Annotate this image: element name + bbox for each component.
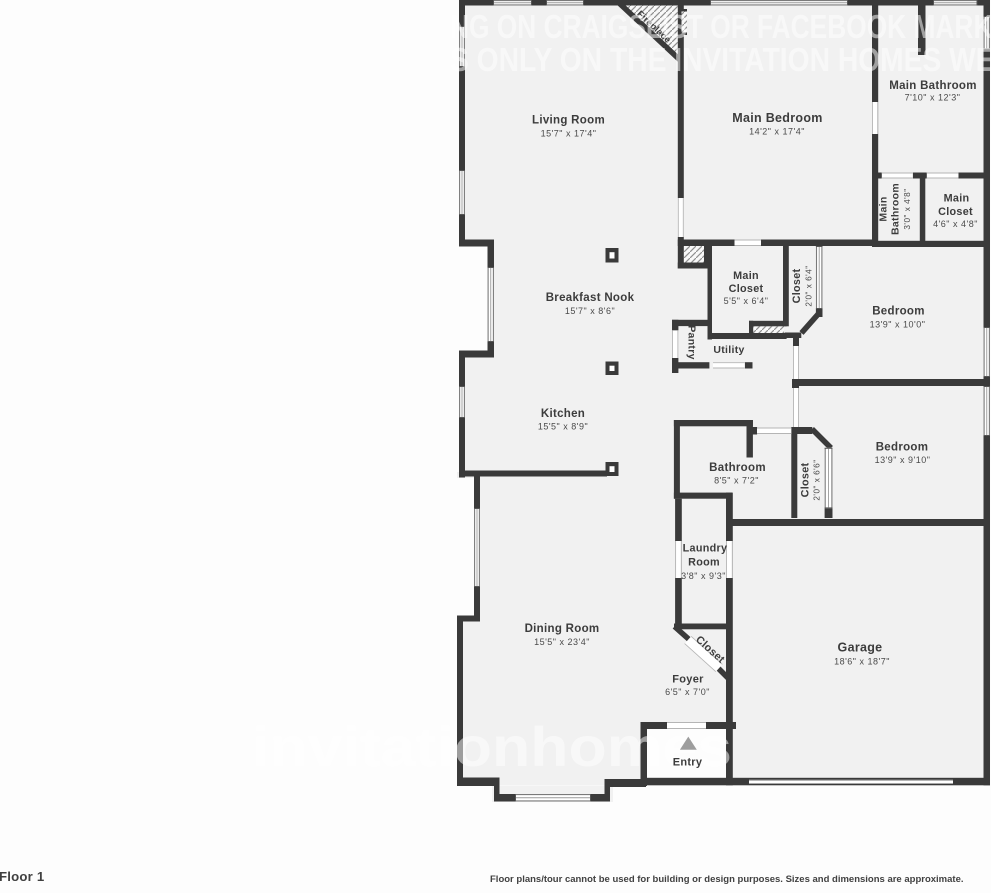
svg-text:S ONLY ON THE INVITATION HOMES: S ONLY ON THE INVITATION HOMES WEB [450,41,991,78]
svg-text:Breakfast Nook: Breakfast Nook [546,292,635,304]
svg-text:Closet: Closet [938,206,973,218]
svg-text:Floor plans/tour cannot be use: Floor plans/tour cannot be used for buil… [490,874,964,885]
svg-text:14'2" x 17'4": 14'2" x 17'4" [749,127,805,137]
svg-text:5'5" x 6'4": 5'5" x 6'4" [724,296,769,306]
svg-text:18'6" x 18'7": 18'6" x 18'7" [834,657,890,667]
svg-text:Main Bathroom: Main Bathroom [889,80,977,92]
svg-text:7'10" x 12'3": 7'10" x 12'3" [905,93,961,103]
svg-text:4'6" x 4'8": 4'6" x 4'8" [933,219,978,229]
svg-text:Laundry: Laundry [683,543,728,555]
svg-text:3'0" x 4'8": 3'0" x 4'8" [903,188,912,229]
svg-text:Garage: Garage [838,641,883,655]
svg-text:Floor 1: Floor 1 [0,869,44,884]
svg-text:2'0" x 6'4": 2'0" x 6'4" [805,265,814,306]
svg-text:invitationhomes: invitationhomes [252,715,732,778]
svg-text:Utility: Utility [713,344,744,356]
svg-text:13'9" x 10'0": 13'9" x 10'0" [870,320,926,330]
svg-text:Kitchen: Kitchen [541,408,585,420]
svg-text:15'7" x 8'6": 15'7" x 8'6" [565,306,615,316]
svg-text:Closet: Closet [729,283,764,295]
svg-text:Room: Room [688,557,720,569]
svg-text:Main: Main [944,193,970,205]
svg-text:15'7" x 17'4": 15'7" x 17'4" [541,129,597,139]
svg-text:Main: Main [733,270,759,282]
svg-text:Entry: Entry [673,757,703,769]
svg-text:Closet: Closet [800,462,812,497]
svg-text:13'9" x 9'10": 13'9" x 9'10" [875,455,931,465]
svg-text:Closet: Closet [791,268,803,303]
svg-text:2'0" x 6'6": 2'0" x 6'6" [813,459,822,500]
svg-text:Bathroom: Bathroom [890,183,902,235]
svg-text:15'5" x 8'9": 15'5" x 8'9" [538,422,588,432]
svg-text:Bedroom: Bedroom [876,442,929,454]
svg-text:Main: Main [878,196,890,221]
svg-text:Main Bedroom: Main Bedroom [732,111,822,125]
svg-text:3'8" x 9'3": 3'8" x 9'3" [681,571,726,581]
svg-text:Pantry: Pantry [686,325,698,359]
svg-text:6'5" x 7'0": 6'5" x 7'0" [665,687,710,697]
svg-text:Living Room: Living Room [532,115,605,127]
svg-text:15'5" x 23'4": 15'5" x 23'4" [534,637,590,647]
svg-text:Dining Room: Dining Room [525,623,600,635]
svg-text:NG ON CRAIGSLIST OR FACEBOOK M: NG ON CRAIGSLIST OR FACEBOOK MARKE [450,8,991,45]
svg-text:8'5" x 7'2": 8'5" x 7'2" [714,476,759,486]
svg-text:Bathroom: Bathroom [709,462,766,474]
svg-text:Foyer: Foyer [672,674,704,686]
svg-text:Bedroom: Bedroom [872,306,925,318]
